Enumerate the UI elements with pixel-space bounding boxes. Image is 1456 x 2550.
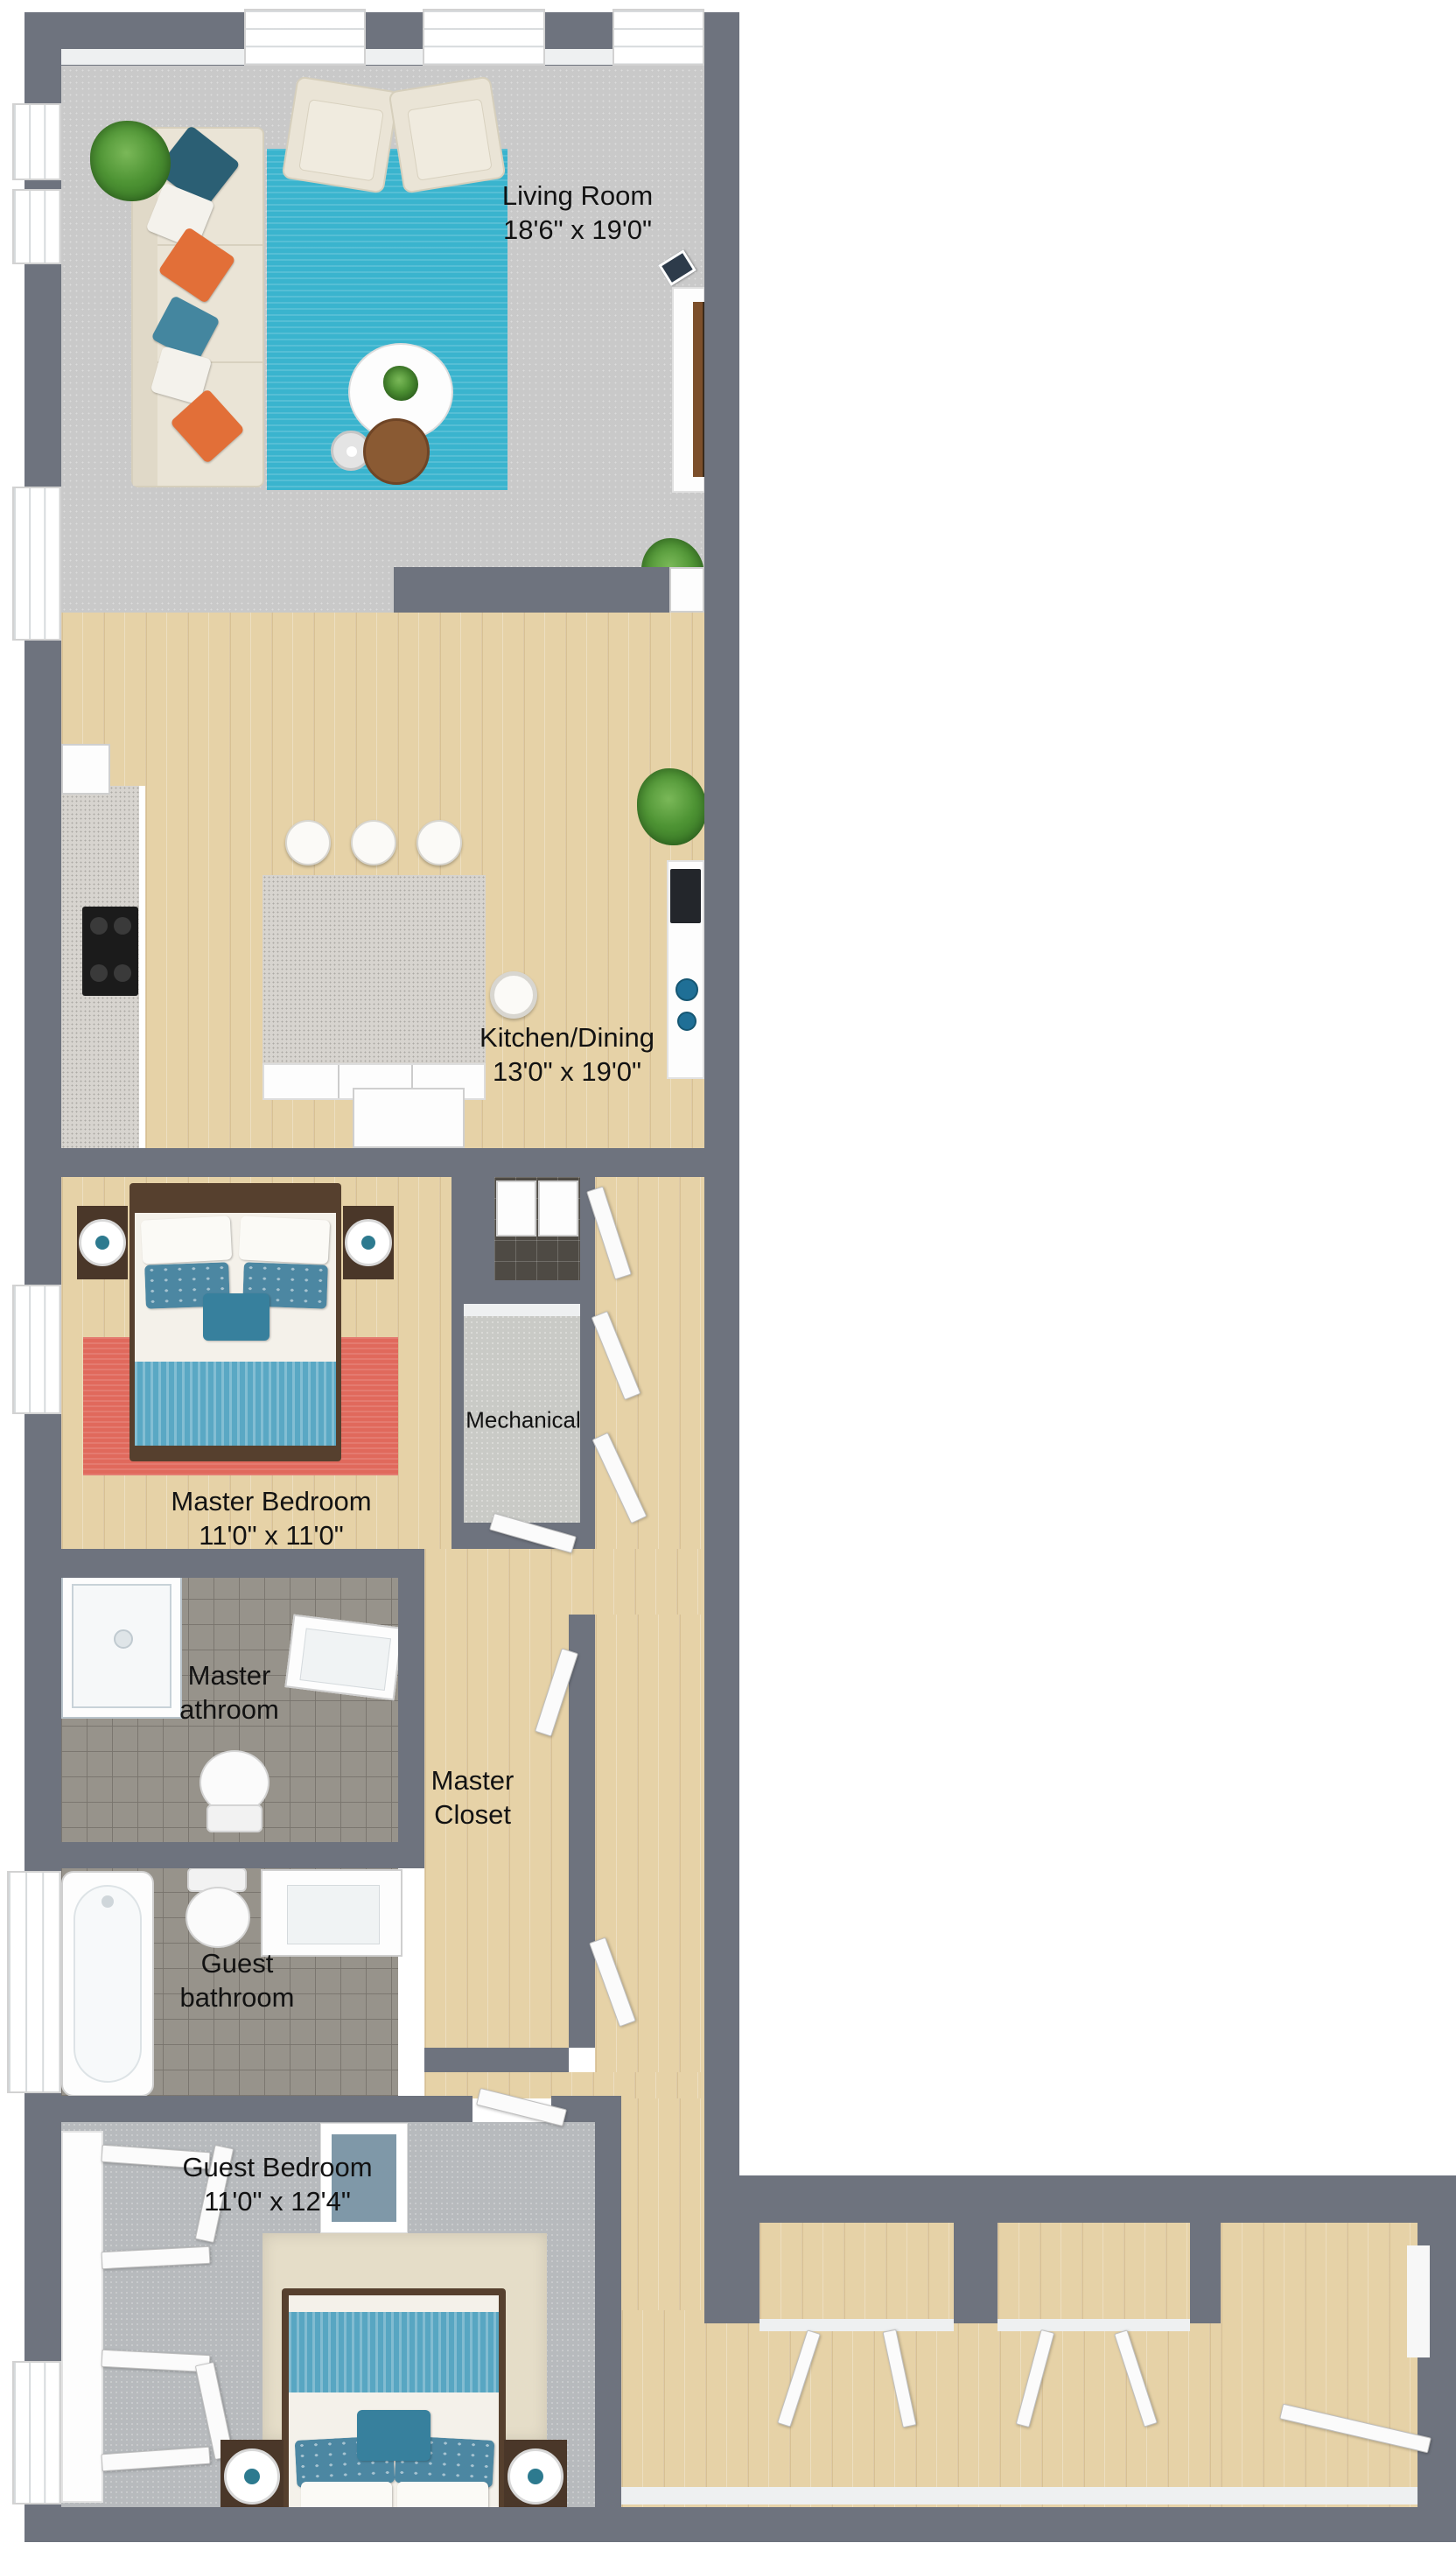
pantry-cabinet xyxy=(353,1088,465,1148)
entry-floor xyxy=(1221,2223,1417,2507)
wall xyxy=(424,2048,569,2072)
guest-pillow-teal xyxy=(357,2410,430,2461)
tv xyxy=(693,302,705,477)
wall xyxy=(451,1177,464,1549)
side-table xyxy=(363,418,430,485)
dryer xyxy=(538,1180,578,1236)
entry-door-frame xyxy=(1407,2245,1430,2357)
bar-stool xyxy=(351,820,396,865)
kitchen-dining-label: Kitchen/Dining 13'0" x 19'0" xyxy=(479,1020,654,1089)
kitchen-sink-cabinet xyxy=(61,744,110,795)
master-pillow-white xyxy=(141,1215,232,1264)
wall xyxy=(24,1549,424,1578)
mechanical-wall-face xyxy=(464,1304,580,1316)
wall xyxy=(704,2175,1452,2223)
cooktop xyxy=(82,907,138,996)
window xyxy=(12,1285,61,1414)
guest-closet-panel xyxy=(61,2131,103,2503)
wall xyxy=(464,1280,580,1304)
guest-bathroom-label: Guest bathroom xyxy=(180,1946,295,2014)
wall xyxy=(24,2096,472,2122)
wall xyxy=(954,2223,997,2323)
burner xyxy=(114,917,131,935)
shower-drain xyxy=(114,1629,133,1649)
wall-oven xyxy=(670,869,701,923)
wall xyxy=(580,1177,595,1527)
living-plant-topleft xyxy=(90,121,171,201)
window xyxy=(7,1871,61,2093)
guest-bedroom-label: Guest Bedroom 11'0" x 12'4" xyxy=(182,2150,372,2218)
washer xyxy=(496,1180,536,1236)
hallway-baseboard xyxy=(621,2487,1417,2504)
wall xyxy=(1190,2223,1221,2323)
burner xyxy=(90,964,108,982)
guest-sink xyxy=(287,1885,380,1944)
guest-vanity xyxy=(261,1869,402,1957)
window xyxy=(612,9,704,66)
window xyxy=(12,189,61,264)
master-bedroom-label: Master Bedroom 11'0" x 11'0" xyxy=(171,1484,371,1552)
coffee-table-plant xyxy=(383,366,418,401)
wall xyxy=(24,1842,398,1868)
wall xyxy=(595,2096,621,2542)
kitchen-island xyxy=(262,875,486,1063)
wall xyxy=(704,2223,759,2323)
wall xyxy=(24,2507,1456,2542)
master-pillow-white xyxy=(239,1215,330,1264)
burner xyxy=(114,964,131,982)
wall xyxy=(398,1549,424,1868)
shower xyxy=(61,1573,182,1719)
hall-closet-a-floor xyxy=(759,2223,954,2329)
island-seam xyxy=(338,1065,339,1098)
mechanical-label: Mechanical xyxy=(465,1406,581,1435)
hall-closet-b-floor xyxy=(997,2223,1190,2329)
window xyxy=(244,9,366,66)
master-lamp-left-dot xyxy=(95,1236,109,1250)
bathtub-basin xyxy=(73,1885,142,2083)
vestibule-floor xyxy=(424,1549,704,1615)
window xyxy=(12,103,61,180)
window xyxy=(423,9,545,66)
bar-stool xyxy=(490,971,537,1019)
wall xyxy=(24,12,61,2542)
bar-stool xyxy=(285,820,331,865)
guest-toilet xyxy=(185,1887,250,1948)
master-sink xyxy=(299,1628,391,1690)
window xyxy=(12,487,61,641)
closet-door-frame xyxy=(759,2319,954,2331)
burner xyxy=(90,917,108,935)
living-cabinet xyxy=(669,567,704,613)
bar-stool xyxy=(416,820,462,865)
armchair-left xyxy=(281,75,399,193)
window xyxy=(12,2361,61,2504)
master-toilet-tank xyxy=(206,1804,262,1832)
bathtub xyxy=(61,1871,154,2097)
closet-door-frame xyxy=(997,2319,1190,2331)
kitchen-plant xyxy=(637,768,707,845)
master-lamp-right-dot xyxy=(361,1236,375,1250)
wall xyxy=(1417,2175,1456,2542)
wall xyxy=(704,12,739,2223)
armchair-right xyxy=(388,75,506,193)
armchair-cushion xyxy=(407,98,493,180)
guest-lamp-right-dot xyxy=(528,2469,543,2484)
master-blanket xyxy=(135,1362,336,1446)
closet-vestibule-floor xyxy=(424,2072,704,2098)
floor-lamp-bulb xyxy=(346,446,357,457)
wall xyxy=(394,567,669,613)
master-pillow-teal xyxy=(203,1293,269,1341)
living-room-label: Living Room 18'6" x 19'0" xyxy=(502,179,653,247)
master-vanity xyxy=(284,1615,402,1701)
master-closet-label: Master Closet xyxy=(431,1763,514,1832)
wall-face xyxy=(61,49,704,65)
guest-blanket xyxy=(289,2312,499,2392)
kitchen-sink-bowl xyxy=(675,978,698,1001)
wall xyxy=(24,1148,704,1177)
wall xyxy=(569,1615,595,2048)
floor-plan: Living Room 18'6" x 19'0" Kitchen/Dining… xyxy=(0,0,1456,2550)
kitchen-sink-bowl xyxy=(677,1012,696,1031)
guest-lamp-left-dot xyxy=(244,2469,260,2484)
armchair-cushion xyxy=(298,99,384,181)
bathtub-faucet xyxy=(101,1895,114,1908)
master-bathroom-label: Master athroom xyxy=(179,1658,279,1727)
